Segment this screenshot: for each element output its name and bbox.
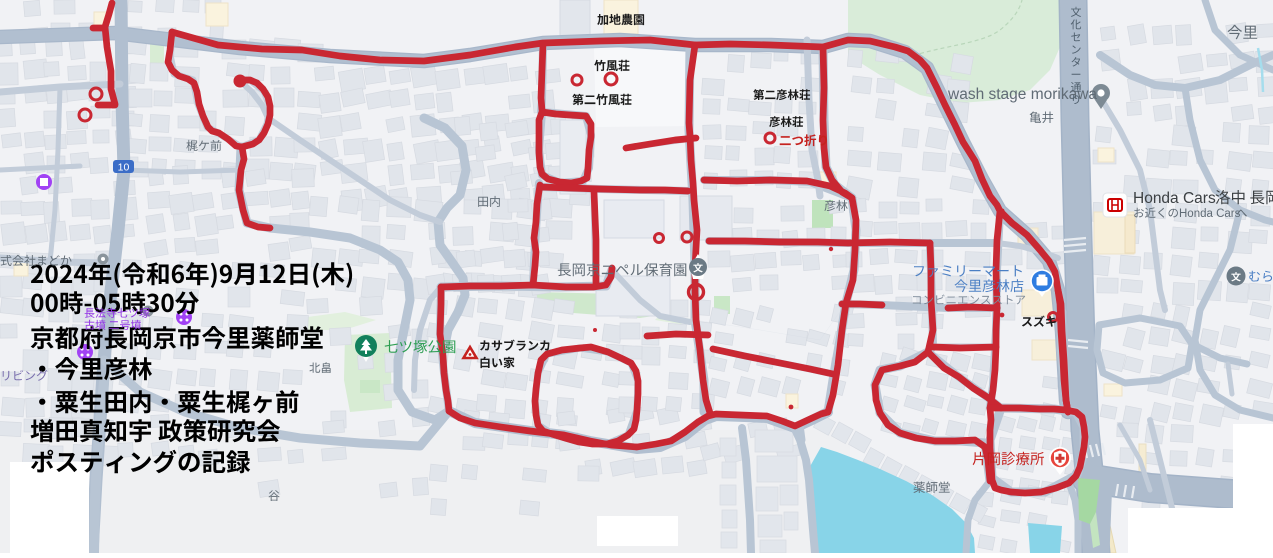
- svg-text:10: 10: [118, 162, 130, 174]
- svg-text:Honda Cars: Honda Cars: [1133, 190, 1216, 207]
- svg-text:Honda Cars: Honda Cars: [1179, 208, 1241, 220]
